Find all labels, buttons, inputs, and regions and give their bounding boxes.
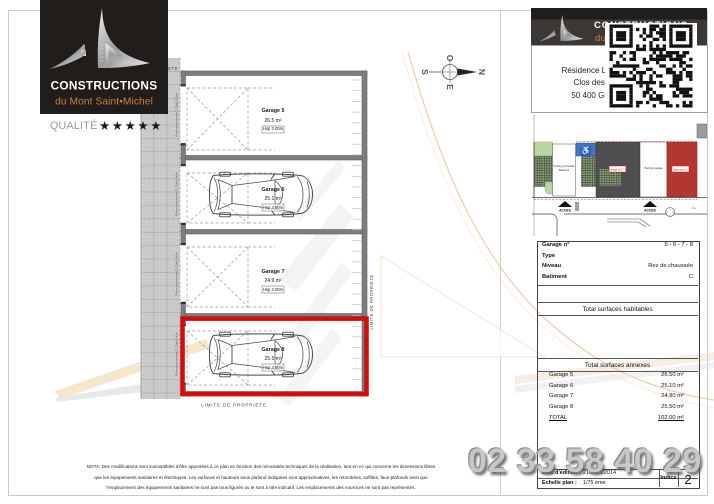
- svg-text:24.9 m²: 24.9 m²: [265, 278, 282, 284]
- svg-text:Hsp 3.00m: Hsp 3.00m: [263, 365, 284, 370]
- svg-text:Porte sectionnelle 2.75m/2.00m: Porte sectionnelle 2.75m/2.00m: [175, 252, 179, 296]
- svg-text:LIMITE DE PROPRIETE: LIMITE DE PROPRIETE: [369, 274, 374, 329]
- svg-text:Parking Garage: Parking Garage: [644, 166, 663, 170]
- svg-text:LIMITE DE PROPRIETE: LIMITE DE PROPRIETE: [201, 403, 266, 408]
- svg-text:Garage 6: Garage 6: [261, 187, 284, 193]
- svg-text:Garage 7: Garage 7: [261, 269, 284, 275]
- svg-text:Hsp 3.00m: Hsp 3.00m: [263, 287, 284, 292]
- svg-text:Hsp 3.00m: Hsp 3.00m: [263, 205, 284, 210]
- svg-text:ACCES: ACCES: [559, 209, 572, 213]
- svg-text:S: S: [420, 69, 430, 75]
- svg-text:♿: ♿: [580, 145, 591, 156]
- svg-text:Batiment: Batiment: [559, 168, 570, 172]
- svg-text:Batiment C: Batiment C: [674, 167, 688, 171]
- svg-text:26.5 m²: 26.5 m²: [265, 118, 282, 124]
- svg-text:du Mont Saint•Michel: du Mont Saint•Michel: [55, 97, 153, 108]
- svg-text:Parking Immeuble: Parking Immeuble: [554, 164, 575, 168]
- svg-text:ACCES: ACCES: [644, 209, 657, 213]
- svg-text:E: E: [445, 84, 455, 90]
- svg-text:Garage 5-6-7-8: Garage 5-6-7-8: [608, 167, 628, 171]
- svg-text:O: O: [445, 55, 455, 62]
- svg-text:N: N: [477, 69, 487, 75]
- svg-text:Hsp 3.00m: Hsp 3.00m: [263, 126, 284, 131]
- svg-text:CONSTRUCTIONS: CONSTRUCTIONS: [51, 79, 158, 93]
- svg-text:Garage 5: Garage 5: [261, 108, 284, 114]
- svg-text:Garage 8: Garage 8: [261, 347, 284, 353]
- svg-text:Porte sectionnelle 2.75m/2.00m: Porte sectionnelle 2.75m/2.00m: [175, 172, 179, 216]
- svg-text:Rue: Rue: [692, 207, 697, 210]
- svg-text:25.5 m²: 25.5 m²: [265, 356, 282, 362]
- svg-text:Porte sectionnelle 2.75m/2.00m: Porte sectionnelle 2.75m/2.00m: [175, 332, 179, 376]
- svg-text:Porte sectionnelle 2.75m/2.00m: Porte sectionnelle 2.75m/2.00m: [175, 93, 179, 137]
- svg-text:25.1 m²: 25.1 m²: [265, 196, 282, 202]
